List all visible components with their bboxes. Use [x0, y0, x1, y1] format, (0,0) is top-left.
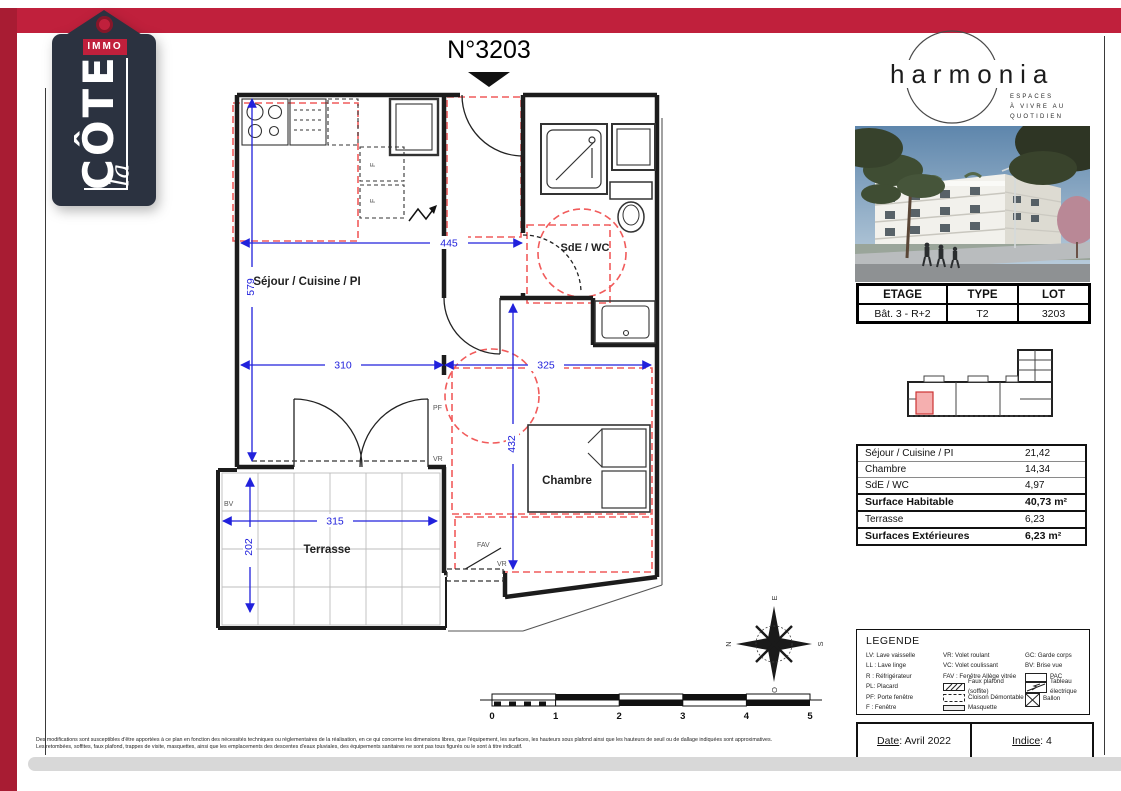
highlighted-unit [916, 392, 933, 414]
surface-label: Terrasse [858, 512, 1025, 527]
legend-item: GC: Garde corps [1025, 651, 1087, 661]
dim-432: 432 [506, 435, 518, 453]
legend-box: LEGENDE LV: Lave vaisselle LL : Lave lin… [856, 629, 1090, 715]
cloison-demontable-icon [943, 694, 965, 702]
indice-label: Indice [1012, 735, 1040, 747]
scale-bar: 0 1 2 3 4 5 [480, 694, 822, 722]
developer-name: harmonia [890, 59, 1054, 89]
legend-column-2: VR: Volet roulant VC: Volet coulissant F… [943, 651, 1025, 713]
legend-item: Masquette [943, 703, 1025, 713]
surface-value: 40,73 m² [1025, 495, 1085, 510]
table-row-total: Surface Habitable 40,73 m² [858, 495, 1085, 512]
legend-item: BV: Brise vue [1025, 661, 1087, 671]
room-terrasse-label: Terrasse [303, 544, 350, 556]
date-label: Date [877, 735, 899, 747]
tag-bv: BV [224, 501, 234, 508]
building-photo [855, 126, 1090, 282]
tag-f2: F [370, 199, 377, 203]
compass-icon: N E S O [724, 595, 825, 692]
info-value-etage: Bât. 3 - R+2 [858, 304, 947, 322]
faux-plafond-icon [943, 683, 965, 691]
legend-item: VR: Volet roulant [943, 651, 1025, 661]
table-row: SdE / WC 4,97 [858, 478, 1085, 495]
tagline-line-1: ESPACES [1010, 94, 1053, 100]
kitchen-units [242, 99, 438, 218]
bathroom-fixtures [541, 124, 655, 343]
date-cell: Date : Avril 2022 [858, 724, 972, 758]
compass-s: S [816, 641, 825, 646]
legend-column-1: LV: Lave vaisselle LL : Lave linge R : R… [866, 651, 942, 713]
info-header-lot: LOT [1018, 285, 1089, 304]
tagline-line-3: QUOTIDIEN [1010, 114, 1063, 120]
tag-vr2: VR [497, 561, 507, 568]
legend-item: R : Réfrigérateur [866, 672, 942, 682]
disclaimer-line-1: Des modifications sont susceptibles d'êt… [36, 737, 836, 744]
room-sejour-label: Séjour / Cuisine / PI [253, 276, 360, 288]
surface-table: Séjour / Cuisine / PI 21,42 Chambre 14,3… [856, 444, 1087, 546]
legend-item: LL : Lave linge [866, 661, 942, 671]
tableau-electrique-icon [1025, 682, 1047, 693]
legend-item: LV: Lave vaisselle [866, 651, 942, 661]
surface-value: 6,23 m² [1025, 529, 1085, 544]
surface-value: 14,34 [1025, 462, 1085, 477]
revision-box: Date : Avril 2022 Indice : 4 [856, 722, 1094, 760]
building-key-plan [900, 346, 1090, 432]
table-row-total: Surfaces Extérieures 6,23 m² [858, 529, 1085, 544]
disclaimer-line-2: Les retombées, soffites, faux plafond, t… [36, 744, 836, 751]
legend-item: PL: Placard [866, 682, 942, 692]
legend-item: Faux plafond (soffite) [943, 682, 1025, 692]
room-labels: Séjour / Cuisine / PI SdE / WC Chambre T… [253, 242, 609, 556]
room-sde-label: SdE / WC [561, 242, 610, 254]
surface-label: SdE / WC [858, 478, 1025, 493]
legend-title: LEGENDE [866, 635, 920, 647]
scale-tick-2: 2 [617, 711, 622, 722]
surface-label: Chambre [858, 462, 1025, 477]
table-row: Séjour / Cuisine / PI 21,42 [858, 446, 1085, 462]
plan-sheet: IMMO CÔTE la N°3203 [0, 0, 1121, 791]
info-header-etage: ETAGE [858, 285, 947, 304]
dimension-lines [223, 99, 651, 612]
masquette-icon [943, 704, 965, 712]
surface-label: Séjour / Cuisine / PI [858, 446, 1025, 461]
disclaimer-text: Des modifications sont susceptibles d'êt… [36, 737, 836, 752]
scale-tick-5: 5 [807, 711, 813, 722]
indice-cell: Indice : 4 [972, 724, 1092, 758]
tag-fav: FAV [477, 542, 490, 549]
dim-325: 325 [537, 360, 555, 372]
tagline-line-2: À VIVRE AU [1010, 103, 1065, 110]
info-value-lot: 3203 [1018, 304, 1089, 322]
tag-f1: F [370, 163, 377, 167]
compass-e: E [770, 595, 779, 600]
scale-tick-4: 4 [744, 711, 750, 722]
legend-item: VC: Volet coulissant [943, 661, 1025, 671]
surface-value: 21,42 [1025, 446, 1085, 461]
surface-value: 6,23 [1025, 512, 1085, 527]
surface-label: Surfaces Extérieures [858, 529, 1025, 544]
table-row: Chambre 14,34 [858, 462, 1085, 478]
surface-label: Surface Habitable [858, 495, 1025, 510]
dim-445: 445 [440, 238, 458, 250]
surface-value: 4,97 [1025, 478, 1085, 493]
bed [528, 425, 650, 512]
scale-tick-3: 3 [680, 711, 685, 722]
legend-column-3: GC: Garde corps BV: Brise vue PAC Tablea… [1025, 651, 1087, 707]
pac-icon [1025, 673, 1047, 682]
dim-315: 315 [326, 516, 344, 528]
legend-item: PF: Porte fenêtre [866, 693, 942, 703]
scale-tick-1: 1 [553, 711, 559, 722]
dim-310: 310 [334, 360, 352, 372]
dim-202: 202 [243, 538, 255, 556]
developer-logo: harmonia ESPACES À VIVRE AU QUOTIDIEN [860, 26, 1090, 126]
scale-tick-0: 0 [489, 711, 494, 722]
info-value-type: T2 [947, 304, 1018, 322]
info-header-type: TYPE [947, 285, 1018, 304]
doors [294, 95, 581, 578]
lot-info-table: ETAGE TYPE LOT Bât. 3 - R+2 T2 3203 [856, 283, 1091, 324]
tag-vr: VR [433, 456, 443, 463]
legend-item: Tableau électrique [1025, 682, 1087, 692]
tag-pf: PF [433, 405, 442, 412]
table-row: Terrasse 6,23 [858, 512, 1085, 529]
entry-arrow-icon [409, 205, 437, 221]
compass-n: N [724, 641, 733, 646]
legend-item: F : Fenêtre [866, 703, 942, 713]
room-chambre-label: Chambre [542, 475, 592, 487]
footer-gray-bar [28, 757, 1121, 771]
legend-item: Cloison Démontable [943, 693, 1025, 703]
compass-o: O [770, 687, 779, 693]
ballon-icon [1025, 693, 1040, 707]
